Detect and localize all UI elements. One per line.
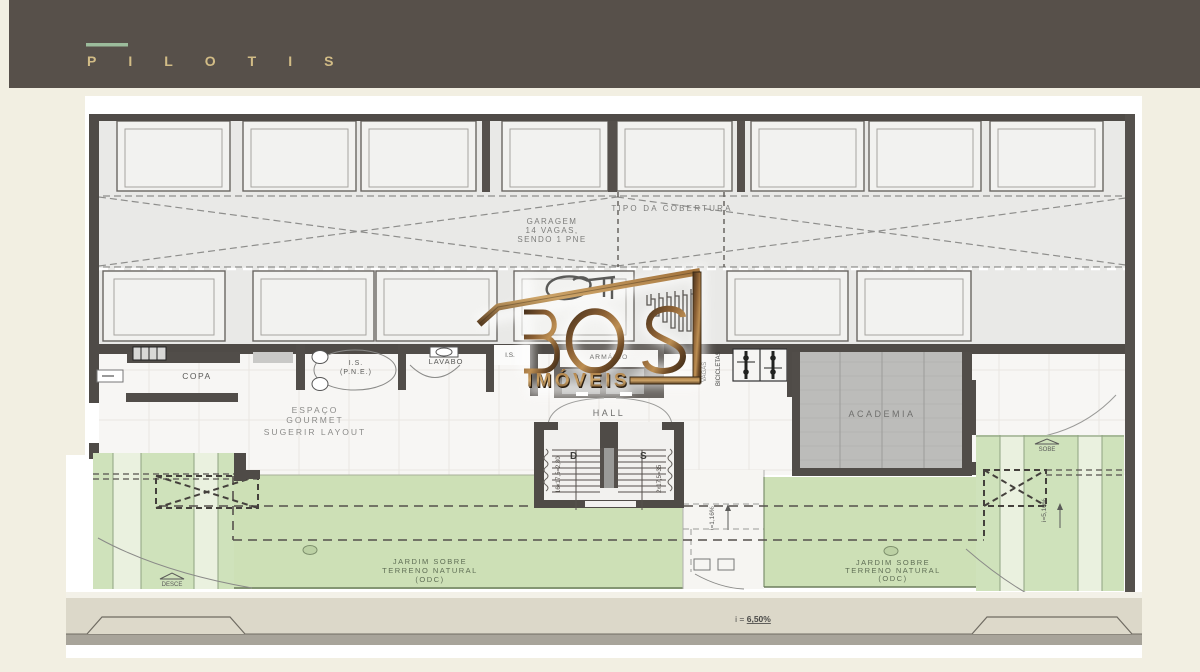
svg-text:LAVABO: LAVABO [429,357,464,366]
svg-text:TIPO DA COBERTURA: TIPO DA COBERTURA [611,204,732,213]
svg-text:i=1,16%: i=1,16% [709,506,716,530]
svg-text:COPA: COPA [182,371,211,381]
svg-text:SUGERIR LAYOUT: SUGERIR LAYOUT [264,427,366,437]
svg-text:D: D [570,451,577,462]
svg-text:GARAGEM: GARAGEM [527,217,578,226]
svg-text:i = 6,50%: i = 6,50% [735,614,771,624]
svg-text:DESCE: DESCE [162,582,183,588]
svg-text:IMÓVEIS: IMÓVEIS [527,370,630,392]
svg-text:HALL: HALL [593,408,626,418]
svg-text:SOBE: SOBE [1039,447,1056,453]
svg-text:ESPAÇO: ESPAÇO [292,405,339,415]
svg-text:16x17,5=2,80: 16x17,5=2,80 [556,456,562,493]
svg-text:GOURMET: GOURMET [286,415,343,425]
svg-text:(P.N.E.): (P.N.E.) [340,369,372,376]
svg-text:I.S.: I.S. [505,352,515,359]
svg-text:I.S.: I.S. [349,360,364,367]
svg-text:(ODC): (ODC) [878,574,907,583]
svg-text:PILOTIS: PILOTIS [87,53,365,69]
svg-text:BICICLETAS: BICICLETAS [716,351,722,386]
svg-text:2x17,5=35: 2x17,5=35 [657,464,663,493]
svg-text:TERRENO NATURAL: TERRENO NATURAL [382,566,478,575]
svg-text:(ODC): (ODC) [415,575,444,584]
svg-text:14 VAGAS,: 14 VAGAS, [526,226,579,235]
svg-text:SENDO 1 PNE: SENDO 1 PNE [517,235,586,244]
svg-text:JARDIM SOBRE: JARDIM SOBRE [393,557,467,566]
svg-text:S: S [640,451,647,462]
svg-text:ACADEMIA: ACADEMIA [848,409,915,419]
